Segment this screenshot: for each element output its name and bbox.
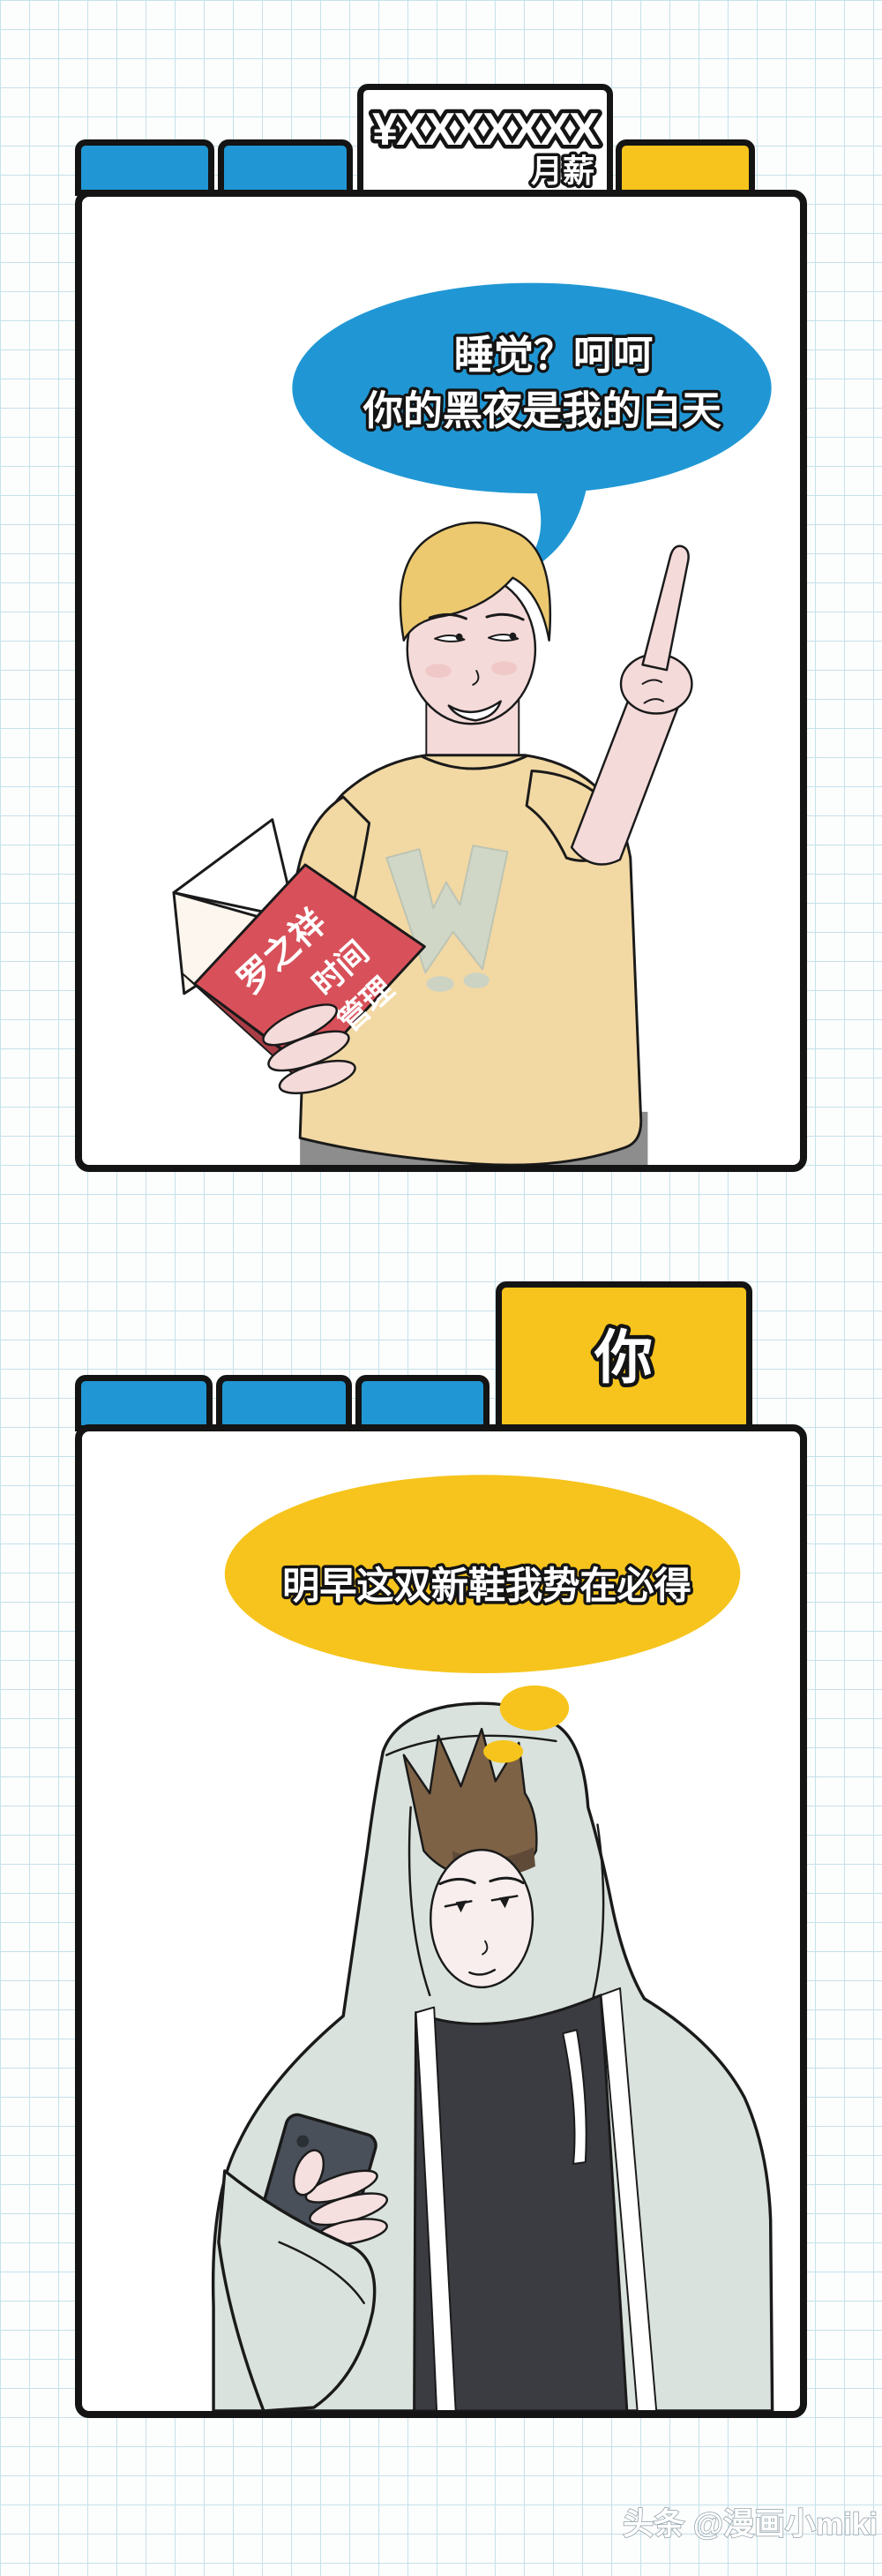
- speech-line2: 你的黑夜是我的白天: [363, 388, 722, 433]
- panel1-blue-tab-2: [218, 139, 353, 196]
- panel1-scene: 睡觉？呵呵 你的黑夜是我的白天: [82, 197, 800, 1165]
- salary-label: 月薪: [531, 153, 594, 189]
- panel2-scene: 明早这双新鞋我势在必得: [82, 1431, 800, 2411]
- comic-page: ¥XXXXXXX 月薪 睡觉？呵呵 你的黑夜是我的白天: [0, 0, 882, 2576]
- salary-tab-art: ¥XXXXXXX 月薪: [363, 90, 607, 190]
- speech-bubble: 睡觉？呵呵 你的黑夜是我的白天: [292, 283, 771, 583]
- salary-amount: ¥XXXXXXX: [372, 104, 600, 155]
- thought-dot-large: [500, 1686, 569, 1731]
- thought-dot-small: [483, 1740, 523, 1763]
- watermark-text: 头条 @漫画小miki: [623, 2507, 878, 2542]
- thought-bubble: 明早这双新鞋我势在必得: [225, 1475, 741, 1673]
- you-tab: 你: [496, 1281, 752, 1431]
- you-tab-label: 你: [594, 1325, 653, 1390]
- panel2-blue-tab-3: [355, 1375, 490, 1431]
- speech-line1: 睡觉？呵呵: [454, 333, 654, 378]
- thought-text: 明早这双新鞋我势在必得: [282, 1565, 691, 1606]
- panel1-blue-tab-1: [75, 139, 214, 196]
- panel1: 睡觉？呵呵 你的黑夜是我的白天: [75, 190, 807, 1172]
- salary-tab: ¥XXXXXXX 月薪: [357, 84, 613, 196]
- character-hoodie: [213, 1703, 773, 2411]
- watermark: 头条 @漫画小miki: [617, 2496, 882, 2552]
- you-tab-art: 你: [502, 1288, 746, 1425]
- panel2-blue-tab-2: [216, 1375, 352, 1431]
- pointing-finger: [643, 546, 689, 670]
- panel2: 明早这双新鞋我势在必得: [75, 1424, 807, 2418]
- panel1-yellow-tab: [616, 139, 755, 196]
- panel2-blue-tab-1: [75, 1375, 213, 1431]
